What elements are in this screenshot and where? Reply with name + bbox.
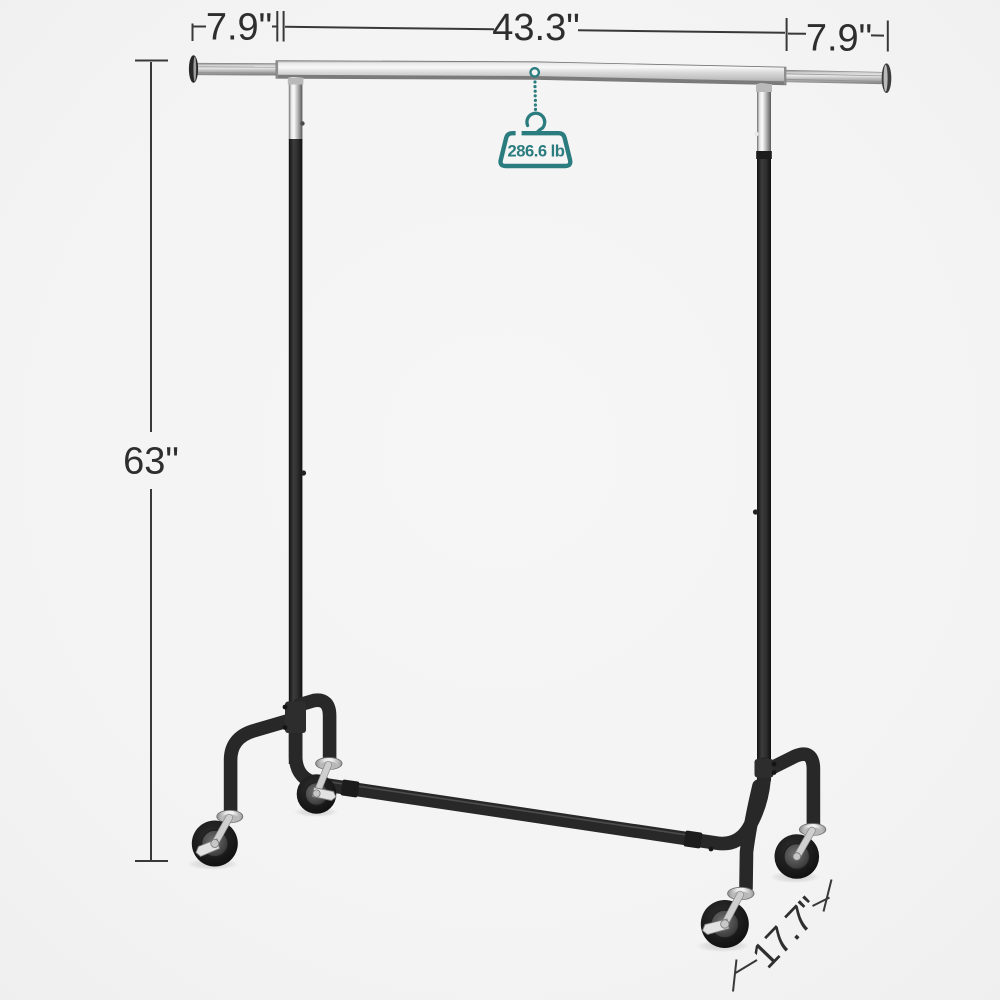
svg-text:63": 63" bbox=[123, 441, 179, 483]
svg-text:286.6 lb: 286.6 lb bbox=[508, 142, 565, 161]
svg-text:7.9": 7.9" bbox=[806, 18, 872, 60]
svg-text:7.9": 7.9" bbox=[206, 7, 272, 49]
svg-text:43.3": 43.3" bbox=[492, 7, 579, 49]
